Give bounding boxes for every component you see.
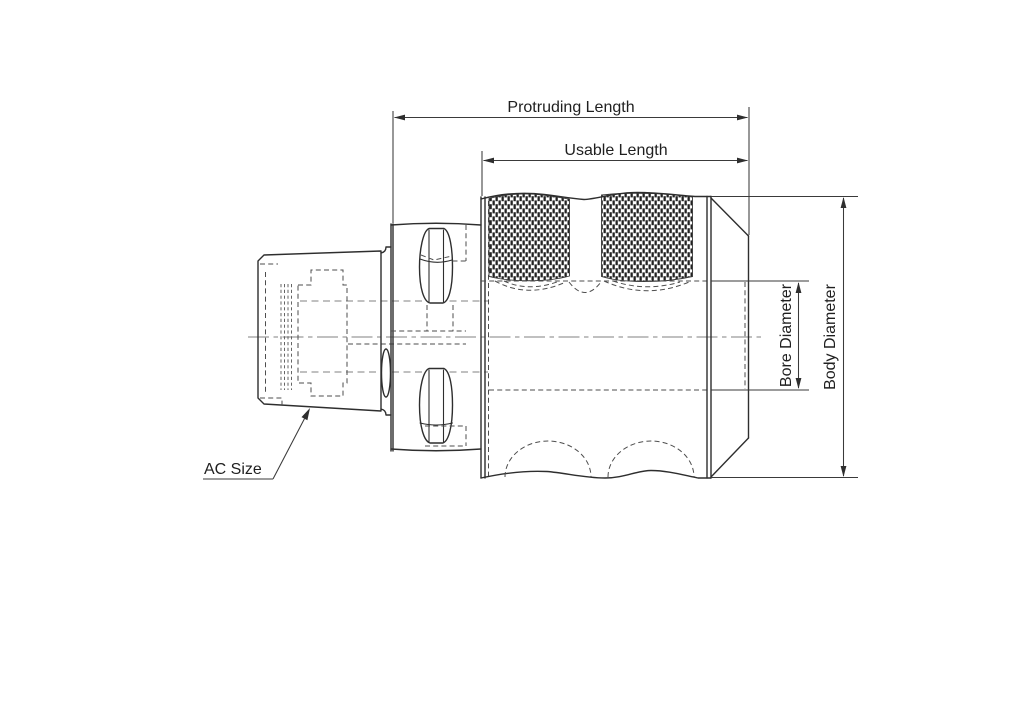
knurl-patch-right: [602, 193, 693, 281]
bore-diameter-label: Bore Diameter: [778, 283, 795, 387]
coolant-tube-ellipse: [382, 349, 391, 397]
body: [481, 193, 711, 479]
taper-shank: [258, 251, 381, 411]
dim-bore-diameter: Bore Diameter: [711, 281, 809, 390]
drawing-canvas: Protruding Length Usable Length Bore Dia…: [0, 0, 1024, 724]
dim-usable-length: Usable Length: [482, 142, 748, 196]
technical-drawing: Protruding Length Usable Length Bore Dia…: [0, 0, 1024, 724]
internal-bore-profile: [298, 270, 347, 396]
drive-slot-lower: [420, 369, 467, 447]
knurl-patch-left: [489, 194, 570, 281]
body-diameter-label: Body Diameter: [822, 283, 839, 389]
callout-ac-size: AC Size: [203, 408, 310, 479]
hidden-wrench-flat-right: [608, 441, 694, 477]
ac-size-label: AC Size: [204, 461, 262, 478]
collar: [381, 247, 391, 415]
protruding-length-label: Protruding Length: [507, 99, 634, 116]
usable-length-label: Usable Length: [564, 142, 667, 159]
dim-protruding-length: Protruding Length: [393, 99, 749, 235]
drive-slot-upper: [391, 225, 466, 331]
